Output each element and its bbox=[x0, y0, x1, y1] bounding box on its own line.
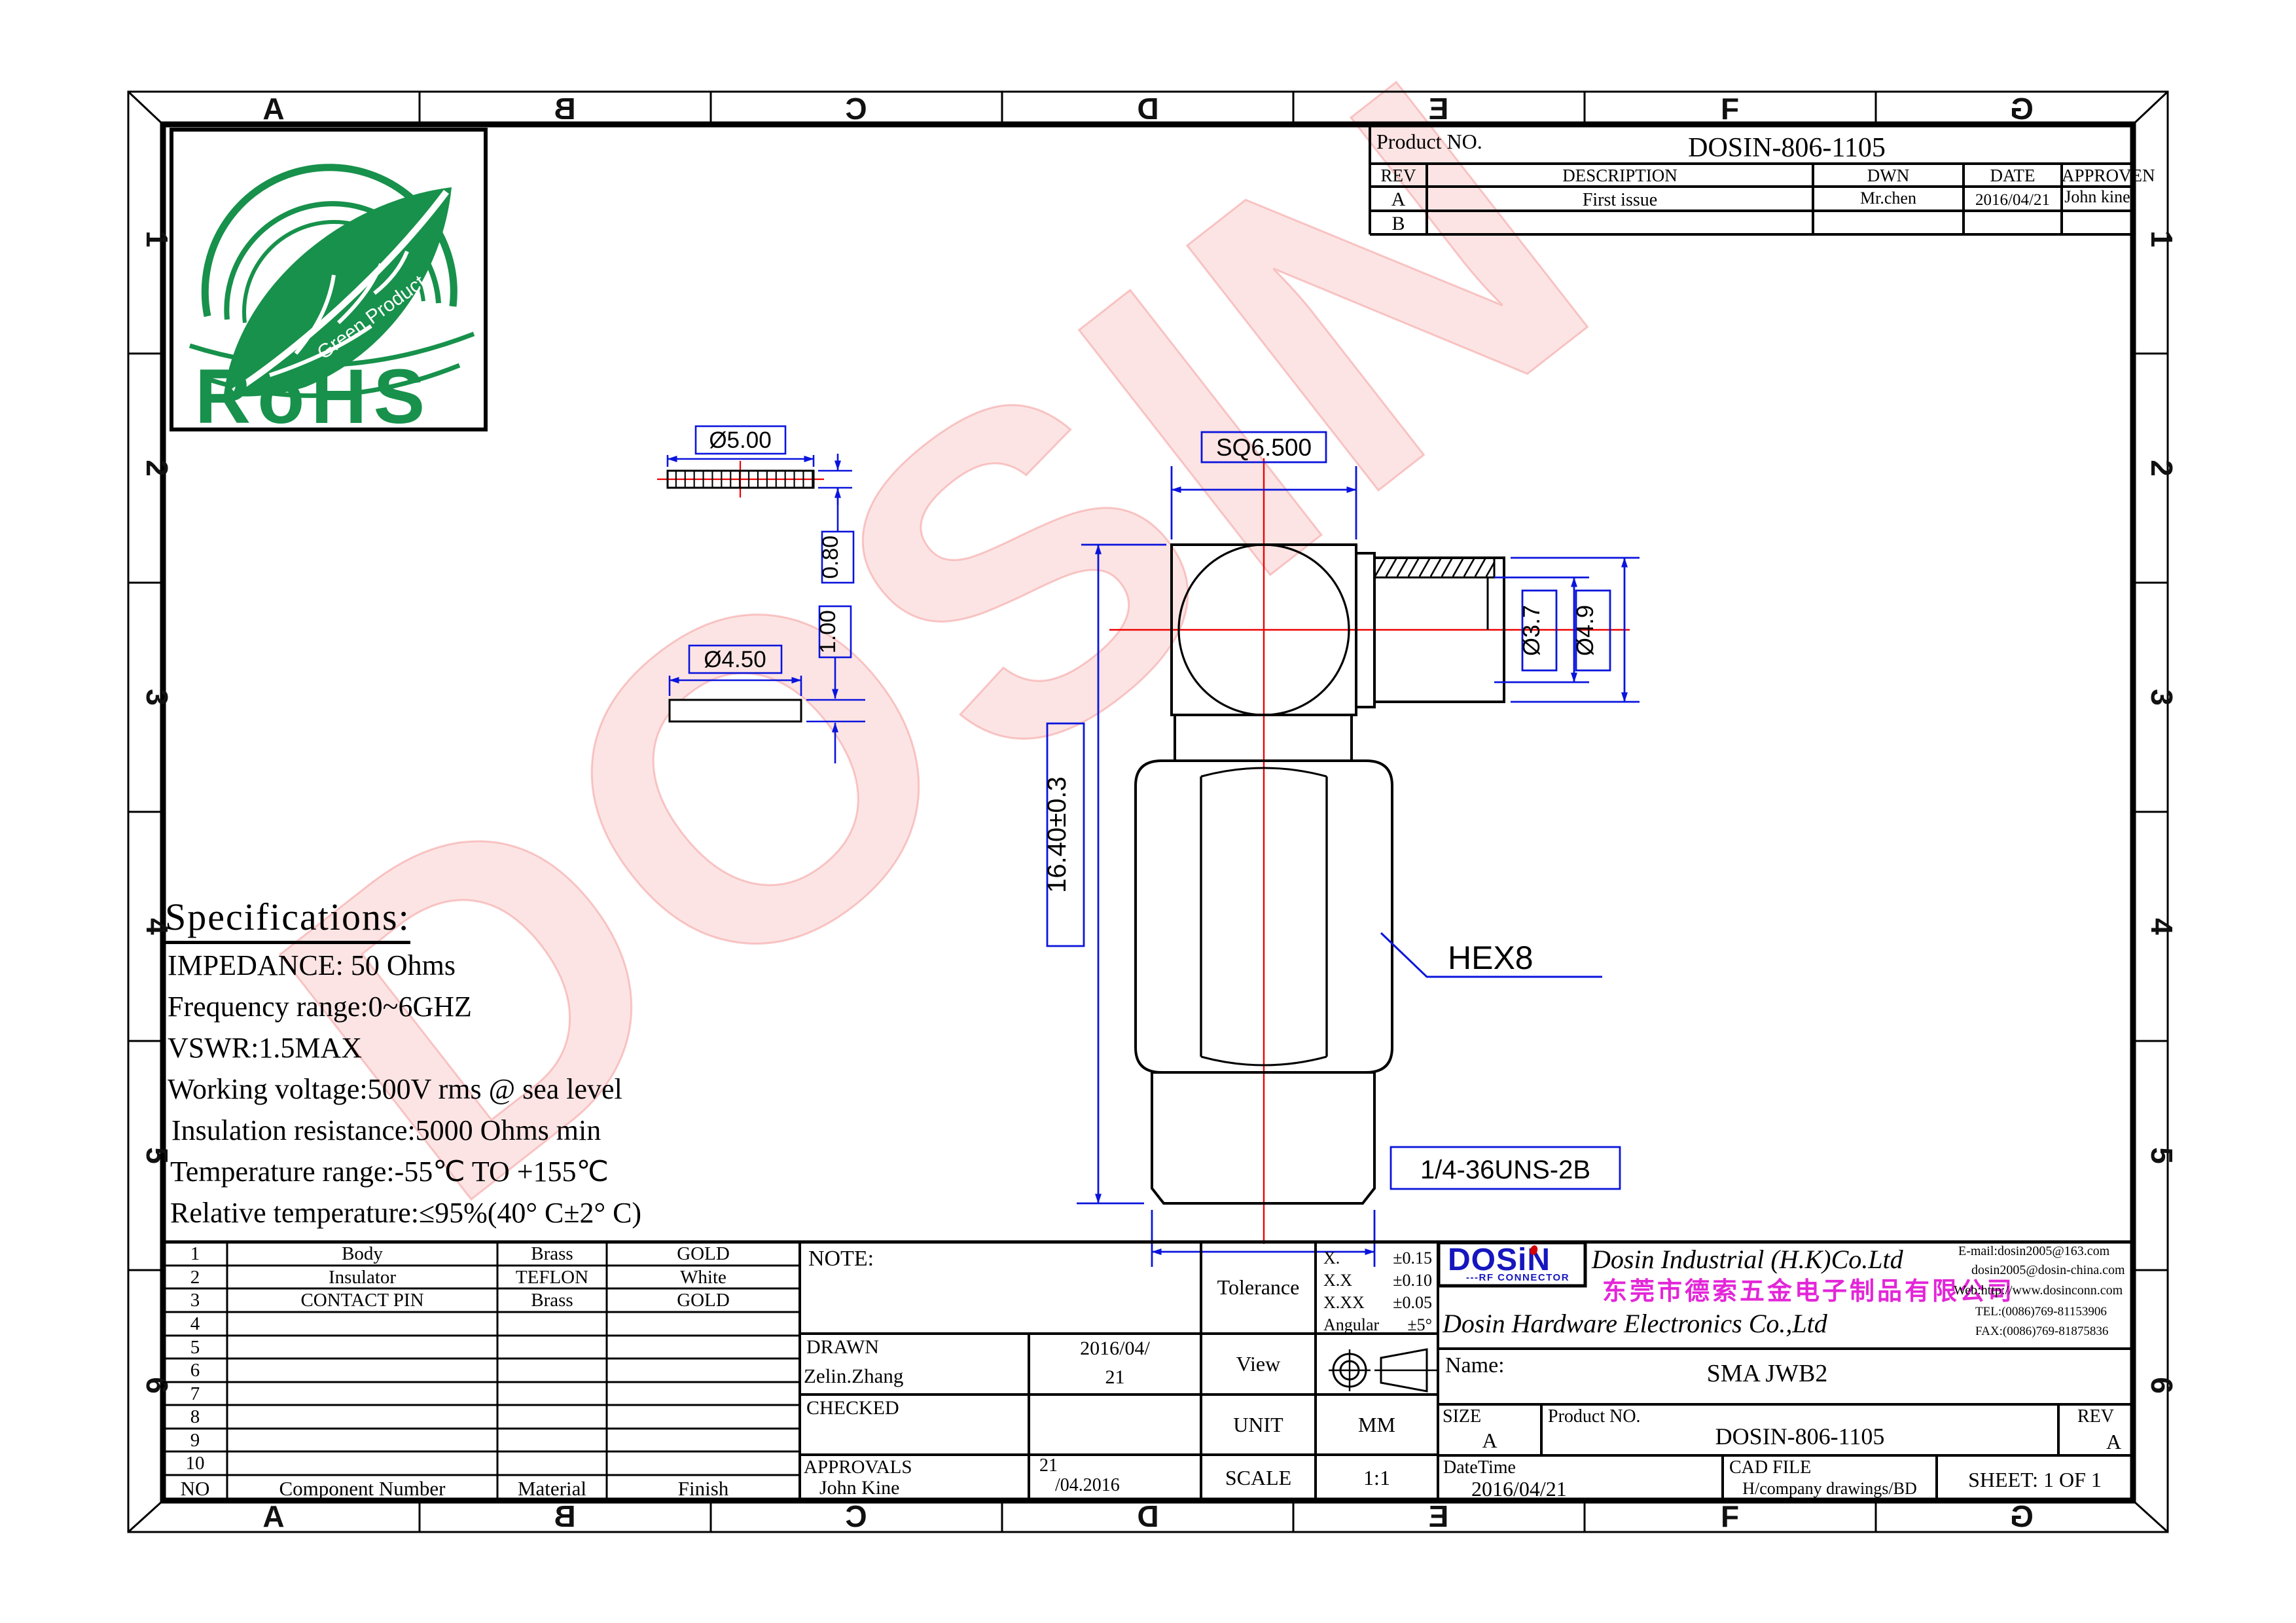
scale-value: 1:1 bbox=[1316, 1467, 1438, 1489]
spec-line: Insulation resistance:5000 Ohms min bbox=[171, 1116, 601, 1146]
approvals-name: John Kine bbox=[819, 1478, 900, 1499]
part-no: 4 bbox=[163, 1314, 227, 1334]
name-label: Name: bbox=[1445, 1354, 1505, 1377]
dim-label-100: 1.00 bbox=[816, 610, 840, 653]
zone-letter: A bbox=[262, 1499, 284, 1533]
rev-value-2: A bbox=[2106, 1431, 2121, 1453]
part-component: Insulator bbox=[227, 1267, 497, 1288]
rev-col-header: REV bbox=[1370, 166, 1427, 185]
company-web: Web:http://www.dosinconn.com bbox=[1954, 1284, 2123, 1298]
product-no-label: Product NO. bbox=[1376, 131, 1482, 153]
drawn-date-line1: 2016/04/ bbox=[1029, 1338, 1201, 1359]
zone-number: 5 bbox=[2145, 1147, 2179, 1164]
parts-header-finish: Finish bbox=[607, 1478, 800, 1500]
dim-label-080: 0.80 bbox=[818, 536, 843, 579]
spec-line: Temperature range:-55℃ TO +155℃ bbox=[170, 1157, 609, 1188]
datetime-value: 2016/04/21 bbox=[1471, 1478, 1567, 1501]
part-no: 10 bbox=[163, 1453, 227, 1474]
tolerance-value: ±0.05 bbox=[1368, 1294, 1432, 1312]
parts-header-material: Material bbox=[497, 1478, 607, 1500]
parts-header-no: NO bbox=[163, 1478, 227, 1500]
drawn-date-line2: 21 bbox=[1029, 1367, 1201, 1388]
zone-number: 3 bbox=[2145, 689, 2179, 706]
rohs-title: RoHS bbox=[195, 354, 431, 440]
tolerance-value: ±5° bbox=[1368, 1316, 1432, 1334]
description-col-header: DESCRIPTION bbox=[1427, 166, 1813, 185]
part-no: 5 bbox=[163, 1338, 227, 1358]
sheet-value: SHEET: 1 OF 1 bbox=[1937, 1469, 2133, 1491]
spec-line: Relative temperature:≤95%(40° C±2° C) bbox=[170, 1198, 641, 1229]
zone-number: 1 bbox=[2145, 230, 2179, 247]
tolerance-name: X. bbox=[1323, 1249, 1340, 1267]
zone-number: 6 bbox=[2145, 1377, 2179, 1394]
part-material: Brass bbox=[497, 1290, 607, 1311]
company-email2: dosin2005@dosin-china.com bbox=[1971, 1264, 2125, 1277]
unit-value: MM bbox=[1316, 1414, 1438, 1436]
zone-letter: A bbox=[262, 92, 284, 126]
company-name-en2: Dosin Hardware Electronics Co.,Ltd bbox=[1443, 1310, 1827, 1338]
zone-letter: C bbox=[845, 92, 867, 126]
product-no-value: DOSIN-806-1105 bbox=[1492, 134, 2081, 163]
zone-number: 3 bbox=[140, 689, 174, 706]
part-no: 3 bbox=[163, 1290, 227, 1311]
part-finish: GOLD bbox=[607, 1290, 800, 1311]
drawing-sheet: DOSIN A B C D E F G A B bbox=[0, 0, 2296, 1623]
part-component: Body bbox=[227, 1244, 497, 1264]
approvals-label: APPROVALS bbox=[804, 1457, 912, 1478]
company-name-en1: Dosin Industrial (H.K)Co.Ltd bbox=[1592, 1246, 1903, 1273]
zone-number: 4 bbox=[2145, 918, 2179, 935]
part-finish: White bbox=[607, 1267, 800, 1288]
datetime-label: DateTime bbox=[1443, 1458, 1516, 1478]
spec-line: Frequency range:0~6GHZ bbox=[168, 992, 472, 1023]
rev-a: A bbox=[1370, 189, 1427, 210]
tolerance-name: X.XX bbox=[1323, 1294, 1365, 1312]
parts-header-component: Component Number bbox=[227, 1478, 497, 1500]
tolerance-name: X.X bbox=[1323, 1271, 1352, 1290]
company-tel: TEL:(0086)769-81153906 bbox=[1975, 1305, 2107, 1319]
zone-letter: F bbox=[1721, 92, 1739, 126]
company-name-cn: 东莞市德索五金电子制品有限公司 bbox=[1602, 1279, 2015, 1305]
scale-label: SCALE bbox=[1201, 1467, 1316, 1489]
specs-title: Specifications: bbox=[165, 897, 410, 944]
company-logo-sub: ---RF CONNECTOR bbox=[1466, 1273, 1570, 1283]
dim-label-d37: Ø3.7 bbox=[1518, 605, 1545, 656]
washer-view bbox=[670, 700, 801, 721]
approven-col-header: APPROVEN bbox=[2062, 166, 2133, 185]
spec-line: IMPEDANCE: 50 Ohms bbox=[168, 951, 456, 981]
date-col-header: DATE bbox=[1964, 166, 2062, 185]
zone-number: 1 bbox=[140, 230, 174, 247]
zone-letter: C bbox=[845, 1499, 867, 1533]
rev-a-approven: John kine bbox=[2062, 188, 2133, 206]
zone-letter: F bbox=[1721, 1499, 1739, 1533]
zone-letter: G bbox=[2010, 92, 2034, 126]
dim-label-1640: 16.40±0.3 bbox=[1043, 776, 1071, 893]
size-value: A bbox=[1438, 1430, 1541, 1452]
zone-letter: B bbox=[554, 92, 575, 126]
zone-number: 2 bbox=[2145, 460, 2179, 477]
zone-letter: D bbox=[1137, 92, 1158, 126]
dim-label-d450: Ø4.50 bbox=[704, 647, 766, 672]
part-no: 8 bbox=[163, 1407, 227, 1427]
company-fax: FAX:(0086)769-81875836 bbox=[1975, 1325, 2108, 1338]
unit-label: UNIT bbox=[1201, 1414, 1316, 1436]
drawn-name: Zelin.Zhang bbox=[804, 1366, 903, 1387]
approvals-date-line2: /04.2016 bbox=[1055, 1476, 1120, 1495]
zone-letter: D bbox=[1137, 1499, 1158, 1533]
rev-a-date: 2016/04/21 bbox=[1964, 192, 2062, 210]
size-label: SIZE bbox=[1443, 1407, 1481, 1427]
rev-label-2: REV bbox=[2058, 1407, 2133, 1427]
dim-label-sq6500: SQ6.500 bbox=[1216, 434, 1312, 461]
company-email1: E-mail:dosin2005@163.com bbox=[1958, 1245, 2109, 1258]
dwn-col-header: DWN bbox=[1813, 166, 1964, 185]
projection-symbol bbox=[1327, 1343, 1443, 1397]
checked-label: CHECKED bbox=[806, 1398, 899, 1419]
rev-a-dwn: Mr.chen bbox=[1813, 189, 1964, 208]
spec-line: Working voltage:500V rms @ sea level bbox=[168, 1074, 622, 1105]
rev-a-description: First issue bbox=[1427, 191, 1813, 210]
cadfile-label: CAD FILE bbox=[1729, 1458, 1811, 1478]
part-component: CONTACT PIN bbox=[227, 1290, 497, 1311]
rohs-logo: Green Product RoHS bbox=[171, 130, 486, 440]
zone-letter: G bbox=[2010, 1499, 2034, 1533]
drawn-label: DRAWN bbox=[806, 1337, 879, 1358]
part-material: Brass bbox=[497, 1244, 607, 1264]
part-no: 1 bbox=[163, 1244, 227, 1264]
tolerance-label: Tolerance bbox=[1201, 1277, 1316, 1299]
part-material: TEFLON bbox=[497, 1267, 607, 1288]
spec-line: VSWR:1.5MAX bbox=[168, 1033, 362, 1064]
part-finish: GOLD bbox=[607, 1244, 800, 1264]
product-value-2: DOSIN-806-1105 bbox=[1541, 1424, 2058, 1449]
note-label: NOTE: bbox=[808, 1247, 874, 1271]
zone-number: 2 bbox=[140, 460, 174, 477]
dim-label-hex8: HEX8 bbox=[1448, 939, 1534, 976]
tolerance-value: ±0.10 bbox=[1368, 1271, 1432, 1290]
dim-label-thread: 1/4-36UNS-2B bbox=[1420, 1156, 1590, 1184]
dim-label-d5: Ø5.00 bbox=[709, 428, 771, 453]
zone-letter: E bbox=[1429, 1499, 1449, 1533]
tolerance-value: ±0.15 bbox=[1368, 1249, 1432, 1267]
zone-letter: B bbox=[554, 1499, 575, 1533]
zone-number: 5 bbox=[140, 1147, 174, 1164]
dim-label-d49: Ø4.9 bbox=[1571, 605, 1598, 656]
part-no: 9 bbox=[163, 1431, 227, 1451]
part-no: 6 bbox=[163, 1360, 227, 1381]
name-value: SMA JWB2 bbox=[1584, 1360, 1950, 1387]
connector-body-view bbox=[1136, 545, 1504, 1203]
part-no: 7 bbox=[163, 1384, 227, 1404]
approvals-date-line1: 21 bbox=[1039, 1456, 1058, 1476]
view-label: View bbox=[1201, 1353, 1316, 1376]
cadfile-value: H/company drawings/BD bbox=[1723, 1480, 1937, 1498]
rev-b: B bbox=[1370, 213, 1427, 234]
zone-letter: E bbox=[1429, 92, 1449, 126]
part-no: 2 bbox=[163, 1267, 227, 1288]
